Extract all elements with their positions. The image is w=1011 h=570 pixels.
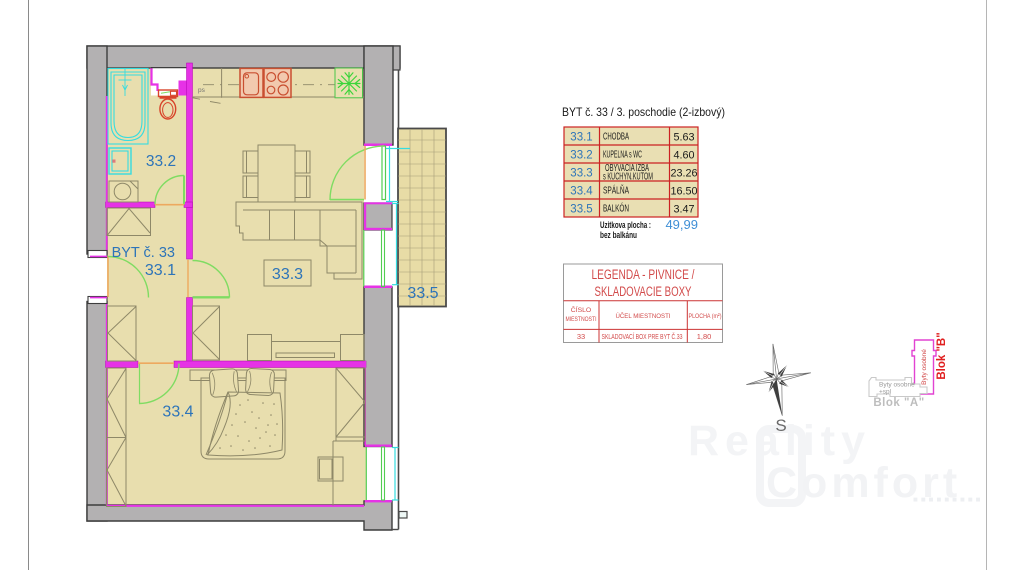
svg-text:MIESTNOSTI: MIESTNOSTI <box>566 316 597 323</box>
svg-text:5.63: 5.63 <box>673 132 694 144</box>
svg-text:3.47: 3.47 <box>673 204 694 216</box>
svg-text:bez balkánu: bez balkánu <box>600 230 637 241</box>
svg-text:16.50: 16.50 <box>670 186 697 198</box>
svg-text:SKLADOVACIE BOXY: SKLADOVACIE BOXY <box>595 284 692 299</box>
svg-text:33.5: 33.5 <box>570 204 592 216</box>
svg-text:BALKÓN: BALKÓN <box>603 202 629 215</box>
svg-text:Byty osobné: Byty osobné <box>879 382 915 389</box>
svg-text:SPÁLŇA: SPÁLŇA <box>603 184 629 197</box>
svg-text:Blok "B": Blok "B" <box>936 332 948 379</box>
svg-text:BYT č. 33 / 3. poschodie (2-i: BYT č. 33 / 3. poschodie (2-izbový) <box>562 105 725 119</box>
svg-text:SKLADOVACÍ BOX PRE BYT Č.33: SKLADOVACÍ BOX PRE BYT Č.33 <box>602 332 683 341</box>
svg-text:33.2: 33.2 <box>570 150 592 162</box>
svg-text:23.26: 23.26 <box>670 168 697 180</box>
svg-text:PLOCHA (m²): PLOCHA (m²) <box>689 313 722 320</box>
svg-text:33.4: 33.4 <box>570 186 593 198</box>
svg-text:+spl: +spl <box>879 389 892 396</box>
svg-text:CHODBA: CHODBA <box>603 132 629 143</box>
svg-text:LEGENDA - PIVNICE /: LEGENDA - PIVNICE / <box>592 267 695 282</box>
svg-text:■■■■■■■■■: ■■■■■■■■■ <box>913 495 984 504</box>
svg-text:S: S <box>775 416 786 435</box>
svg-text:33.5: 33.5 <box>407 285 438 302</box>
svg-text:33.4: 33.4 <box>162 404 193 421</box>
svg-text:BYT č. 33: BYT č. 33 <box>112 245 175 261</box>
svg-text:33.1: 33.1 <box>570 132 592 144</box>
svg-text:s KUCHYN.KUTOM: s KUCHYN.KUTOM <box>603 172 653 183</box>
svg-text:ÚČEL MIESTNOSTI: ÚČEL MIESTNOSTI <box>616 311 671 320</box>
svg-text:Blok "A": Blok "A" <box>873 397 924 409</box>
svg-text:Byty osobné: Byty osobné <box>921 349 928 385</box>
svg-text:49,99: 49,99 <box>665 217 698 232</box>
svg-text:33.2: 33.2 <box>146 153 176 170</box>
svg-text:4.60: 4.60 <box>673 150 694 162</box>
svg-text:ps: ps <box>198 87 206 94</box>
svg-text:ČÍSLO: ČÍSLO <box>571 305 591 314</box>
svg-text:33.1: 33.1 <box>145 262 176 279</box>
svg-text:KUPELNA s WC: KUPELNA s WC <box>603 150 642 161</box>
svg-text:33.3: 33.3 <box>272 266 303 283</box>
svg-text:33.3: 33.3 <box>570 168 592 180</box>
svg-text:33: 33 <box>577 332 585 341</box>
svg-text:1,80: 1,80 <box>697 332 712 341</box>
